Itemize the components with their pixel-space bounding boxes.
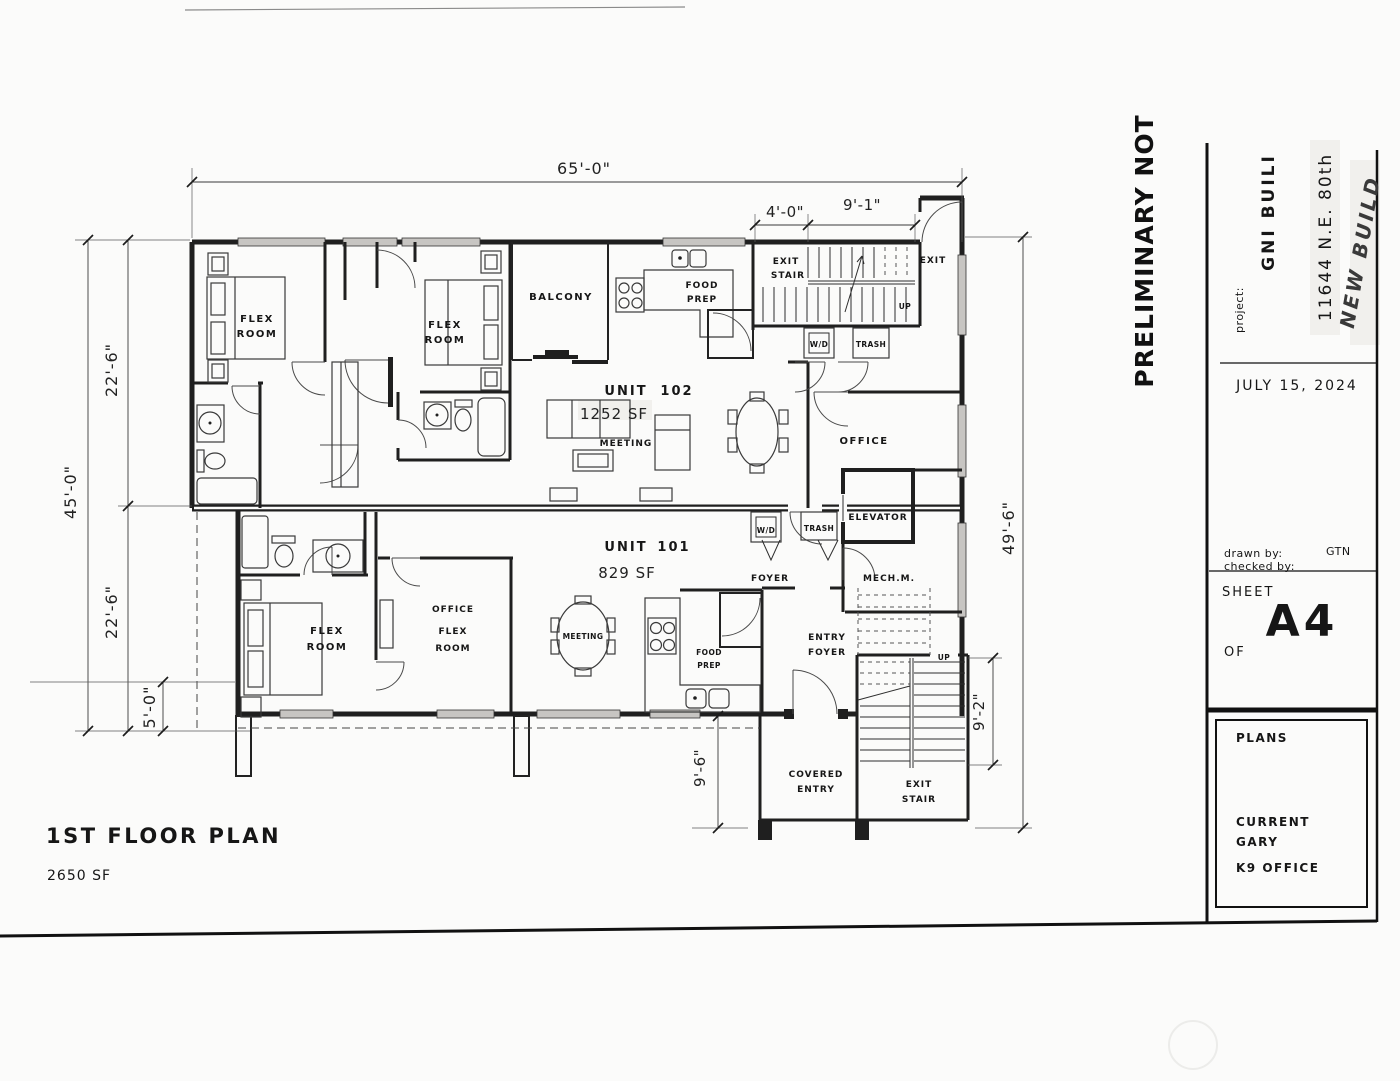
dim-entry-depth: 9'-6" [691,749,709,787]
sheet-number: A4 [1266,596,1339,647]
room-officeflex-line3: ROOM [435,644,470,654]
room-exitstair-lower-line1: EXIT [906,780,933,790]
room-wd102: W/D [810,340,828,349]
drawn-by-label: drawn by: [1224,547,1283,560]
dim-depth-lower: 22'-6" [102,585,121,639]
room-trash101: TRASH [804,524,834,533]
unit102-label: UNIT [604,384,647,399]
plan-total-area: 2650 SF [47,868,111,884]
dim-depth-total: 45'-0" [61,465,80,519]
room-coveredentry-line2: ENTRY [797,785,835,795]
dim-width-total: 65'-0" [557,159,611,178]
room-office: OFFICE [839,436,888,447]
room-officeflex-line2: FLEX [439,627,468,637]
room-trash102: TRASH [856,340,886,349]
room-exit: EXIT [920,256,947,266]
room-exitstair-upper-line1: EXIT [773,257,800,267]
project-label: project: [1233,287,1246,333]
project-name: GNI BUILI [1259,153,1279,271]
room-foodprep102-line2: PREP [687,295,717,305]
room-exitstair-lower-line2: STAIR [902,795,936,805]
room-exitstair-upper-line2: STAIR [771,271,805,281]
unit102-area: 1252 SF [580,405,648,423]
plans-box-line3: K9 OFFICE [1236,861,1319,875]
plans-box-line2: GARY [1236,835,1278,849]
room-flex1-line1: FLEX [240,314,274,325]
room-flex2-line2: ROOM [425,335,466,346]
sheet-of-label: OF [1224,645,1246,660]
room-meeting101: MEETING [563,632,604,641]
room-foodprep101-line1: FOOD [696,648,722,657]
room-mech: MECH.M. [863,574,915,584]
architectural-sheet: 65'-0" 4'-0" 9'-1" 22'-6" 45'-0" 22'-6" … [0,0,1400,1081]
plan-title: 1ST FLOOR PLAN [46,824,281,848]
dim-deck: 5'-0" [140,686,159,729]
project-address: 11644 N.E. 80th [1316,153,1336,321]
stairs-lower [858,588,965,768]
room-up-lower: UP [938,653,950,662]
plan-title-group: 1ST FLOOR PLAN 2650 SF [46,824,281,884]
unit101-label: UNIT [604,540,647,555]
plans-box-line1: CURRENT [1236,815,1310,829]
unit101-number: 101 [657,540,690,555]
room-entryfoyer-line1: ENTRY [808,633,846,643]
kitchen-upper [616,250,753,358]
room-elevator: ELEVATOR [848,513,907,523]
preliminary-stamp: PRELIMINARY NOT [1130,114,1159,387]
room-wd101: W/D [757,526,775,535]
room-officeflex-line1: OFFICE [432,605,474,615]
room-coveredentry-line1: COVERED [789,770,844,780]
floor-plan-drawing: 65'-0" 4'-0" 9'-1" 22'-6" 45'-0" 22'-6" … [0,0,1400,1081]
dim-stair-lower: 9'-2" [970,693,988,731]
plans-box-title: PLANS [1236,731,1288,745]
unit101-area: 829 SF [598,564,656,582]
checked-by-label: checked by: [1224,560,1295,573]
room-foyer: FOYER [751,574,789,584]
dim-depth-upper: 22'-6" [102,343,121,397]
dim-right-total: 49'-6" [999,501,1018,555]
room-foodprep101-line2: PREP [697,661,721,670]
room-flex1-line2: ROOM [237,329,278,340]
room-flex2-line1: FLEX [428,320,462,331]
drawn-by-value: GTN [1326,545,1351,558]
interior-walls [192,242,962,840]
room-meeting102: MEETING [600,439,653,449]
dim-stair-run: 9'-1" [843,196,881,214]
room-flex3-line1: FLEX [310,626,344,637]
room-entryfoyer-line2: FOYER [808,648,846,658]
room-up-upper: UP [899,302,911,311]
bathrooms [197,398,505,572]
dim-stair-landing: 4'-0" [766,203,804,221]
unit102-number: 102 [660,384,693,399]
dimension-lines [30,168,1032,833]
room-foodprep102-line1: FOOD [686,281,719,291]
date: JULY 15, 2024 [1235,378,1358,394]
room-balcony: BALCONY [529,292,593,303]
room-flex3-line2: ROOM [307,642,348,653]
